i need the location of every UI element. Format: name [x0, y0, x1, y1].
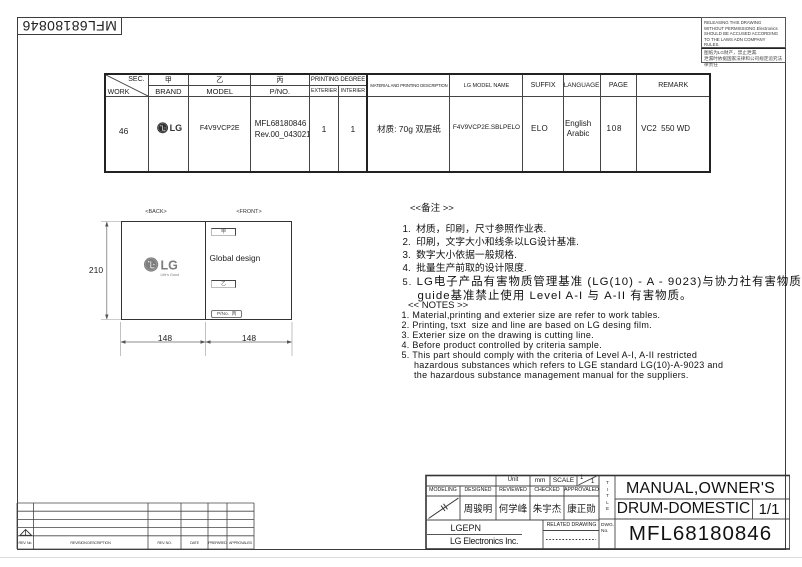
svg-text:LG: LG: [169, 123, 182, 133]
